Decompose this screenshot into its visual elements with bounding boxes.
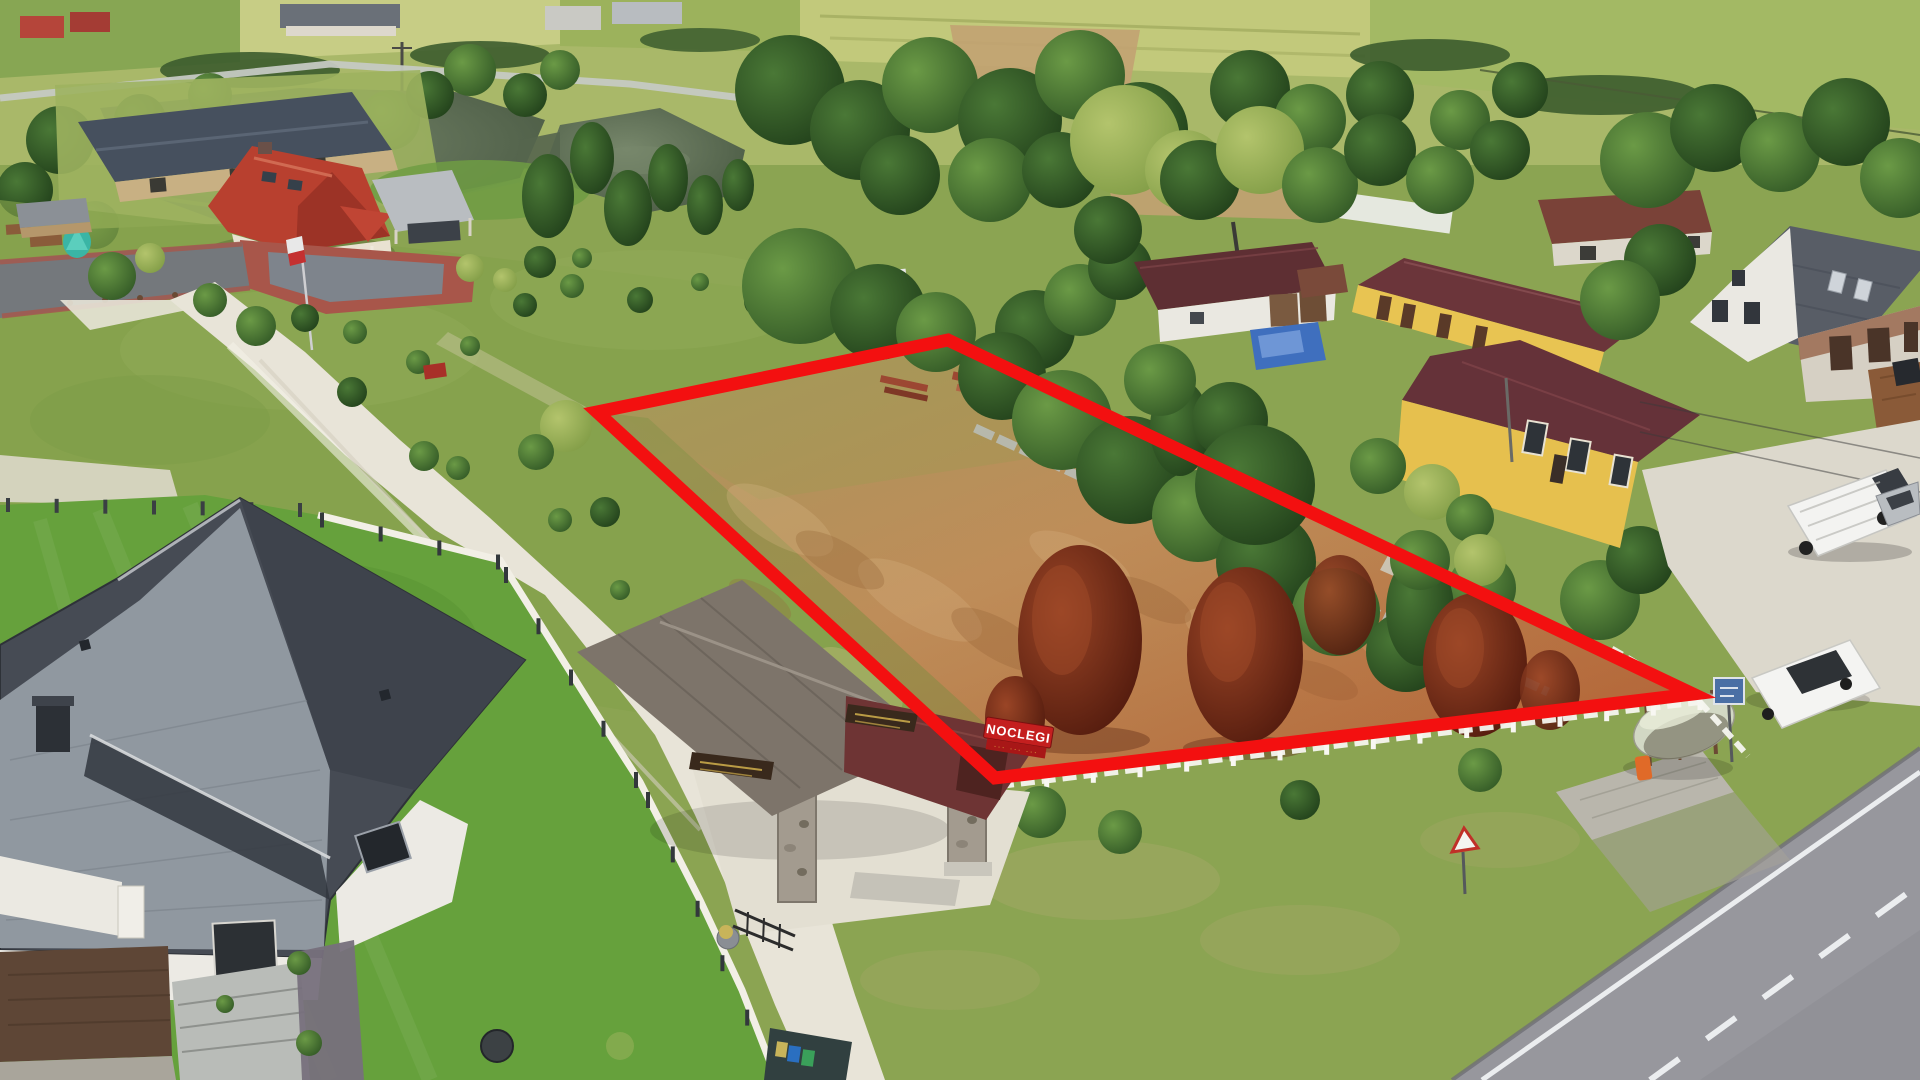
gable-window	[1712, 300, 1728, 322]
pillar-cap	[944, 862, 992, 876]
tree	[540, 50, 580, 90]
small-shed	[1297, 264, 1348, 298]
shrub	[572, 248, 592, 268]
garden-bush	[1446, 494, 1494, 542]
skylight	[261, 171, 276, 183]
van-wheel	[1799, 541, 1813, 555]
shed-window	[1190, 312, 1204, 324]
dry-grass	[980, 840, 1220, 920]
barn-door	[1904, 322, 1918, 352]
tree	[1580, 260, 1660, 340]
fence-post	[6, 498, 10, 512]
pillar-stone	[967, 816, 977, 824]
distant-barn	[280, 4, 400, 28]
fence-post	[55, 499, 59, 513]
fence-post	[696, 901, 700, 917]
planter-flowers	[719, 925, 733, 939]
blue-info-sign	[1714, 678, 1744, 704]
shrub	[610, 580, 630, 600]
bush	[1458, 748, 1502, 792]
distant-house-red-roof	[70, 12, 110, 32]
distant-house-red-roof	[20, 16, 64, 38]
tree	[1344, 114, 1416, 186]
chimney-cap	[32, 696, 74, 706]
fence-post	[496, 555, 500, 570]
tree	[503, 73, 547, 117]
warning-sign-post	[1463, 852, 1465, 894]
shrub	[193, 283, 227, 317]
fence-post	[745, 1010, 749, 1026]
spruce	[570, 122, 614, 194]
topiary-tree	[287, 951, 311, 975]
shrub	[88, 252, 136, 300]
topiary-tree	[216, 995, 234, 1013]
garage-door	[0, 946, 172, 1062]
fence-post	[634, 772, 638, 788]
shed-garage-door	[1269, 293, 1299, 326]
bush	[1098, 810, 1142, 854]
distant-barn-wall	[286, 26, 396, 36]
spruce	[687, 175, 723, 235]
fence-post	[379, 527, 383, 542]
gate-bar	[763, 918, 764, 942]
forest	[948, 138, 1032, 222]
tree	[1470, 120, 1530, 180]
spruce	[604, 170, 652, 246]
carport-car	[407, 220, 460, 244]
fence-post	[103, 500, 107, 514]
tree	[1074, 196, 1142, 264]
shrub	[236, 306, 276, 346]
shrub	[291, 304, 319, 332]
fence-post	[646, 792, 650, 808]
black-car	[1892, 358, 1920, 386]
forest	[860, 135, 940, 215]
recycle-bin-green	[801, 1049, 815, 1067]
spruce	[648, 144, 688, 212]
red-conifer-light	[1032, 565, 1092, 675]
bush	[1280, 780, 1320, 820]
chimney	[258, 142, 272, 154]
pillar-stone	[956, 840, 968, 848]
distant-house	[612, 2, 682, 24]
shrub	[409, 441, 439, 471]
barn-door	[1829, 335, 1853, 370]
tree	[1124, 344, 1196, 416]
gable-window	[1744, 302, 1760, 324]
fence-post	[201, 501, 205, 515]
red-conifer-light	[1436, 608, 1484, 688]
shrub	[135, 243, 165, 273]
tree	[1492, 62, 1548, 118]
shrub	[513, 293, 537, 317]
aerial-photo: NOCLEGI ··· ··· ···	[0, 0, 1920, 1080]
car-wheel	[1762, 708, 1774, 720]
red-conifer-light	[1200, 582, 1256, 682]
fence-post	[320, 513, 324, 528]
fence-post	[298, 503, 302, 517]
gable-window	[1732, 270, 1745, 286]
fence-post	[671, 846, 675, 862]
fence-post	[569, 670, 573, 686]
tree	[1406, 146, 1474, 214]
topiary-tree	[296, 1030, 322, 1056]
lawn-patch	[606, 1032, 634, 1060]
shrub	[493, 268, 517, 292]
barn-opening	[1580, 246, 1596, 260]
house-b-window	[1610, 455, 1633, 488]
drone-photo-stage: NOCLEGI ··· ··· ···	[0, 0, 1920, 1080]
shrub	[446, 456, 470, 480]
lawn-shade	[30, 375, 270, 465]
house-b-window	[1565, 439, 1590, 474]
fence-post	[602, 721, 606, 737]
shrub	[456, 254, 484, 282]
red-conifer	[1304, 555, 1376, 655]
shrub	[691, 273, 709, 291]
house-b-window	[1522, 421, 1547, 456]
fence-post	[720, 955, 724, 971]
gate-bar	[779, 924, 780, 948]
fire-pit	[481, 1030, 513, 1062]
car-wheel	[1840, 678, 1852, 690]
fence-post	[152, 501, 156, 515]
dry-grass	[1200, 905, 1400, 975]
spruce	[522, 154, 574, 238]
shrub	[518, 434, 554, 470]
recycle-bin-yellow	[775, 1041, 788, 1057]
fence-post	[504, 567, 508, 583]
fence-post	[537, 618, 541, 634]
pillar-stone	[797, 868, 807, 876]
distant-house	[545, 6, 601, 30]
farmhouse-window	[149, 177, 166, 192]
shrub	[460, 336, 480, 356]
garden-bush	[1350, 438, 1406, 494]
skylight	[287, 179, 302, 191]
scene-layers	[0, 0, 1920, 1080]
fence-pillar	[118, 886, 144, 938]
pillar-stone	[784, 844, 796, 852]
shrub	[590, 497, 620, 527]
dry-grass	[1420, 812, 1580, 868]
pillar-stone	[799, 820, 809, 828]
shrub	[337, 377, 367, 407]
dry-grass	[860, 950, 1040, 1010]
shrub	[524, 246, 556, 278]
shrub	[343, 320, 367, 344]
shrub	[627, 287, 653, 313]
spruce	[722, 159, 754, 211]
gate-bar	[747, 912, 748, 936]
chimney	[36, 700, 70, 752]
fence-post	[437, 541, 441, 556]
bollard	[172, 292, 178, 298]
shrub	[560, 274, 584, 298]
recycle-bin-blue	[787, 1045, 801, 1063]
hedgerow	[640, 28, 760, 52]
barn-door	[1867, 327, 1891, 362]
shrub	[548, 508, 572, 532]
